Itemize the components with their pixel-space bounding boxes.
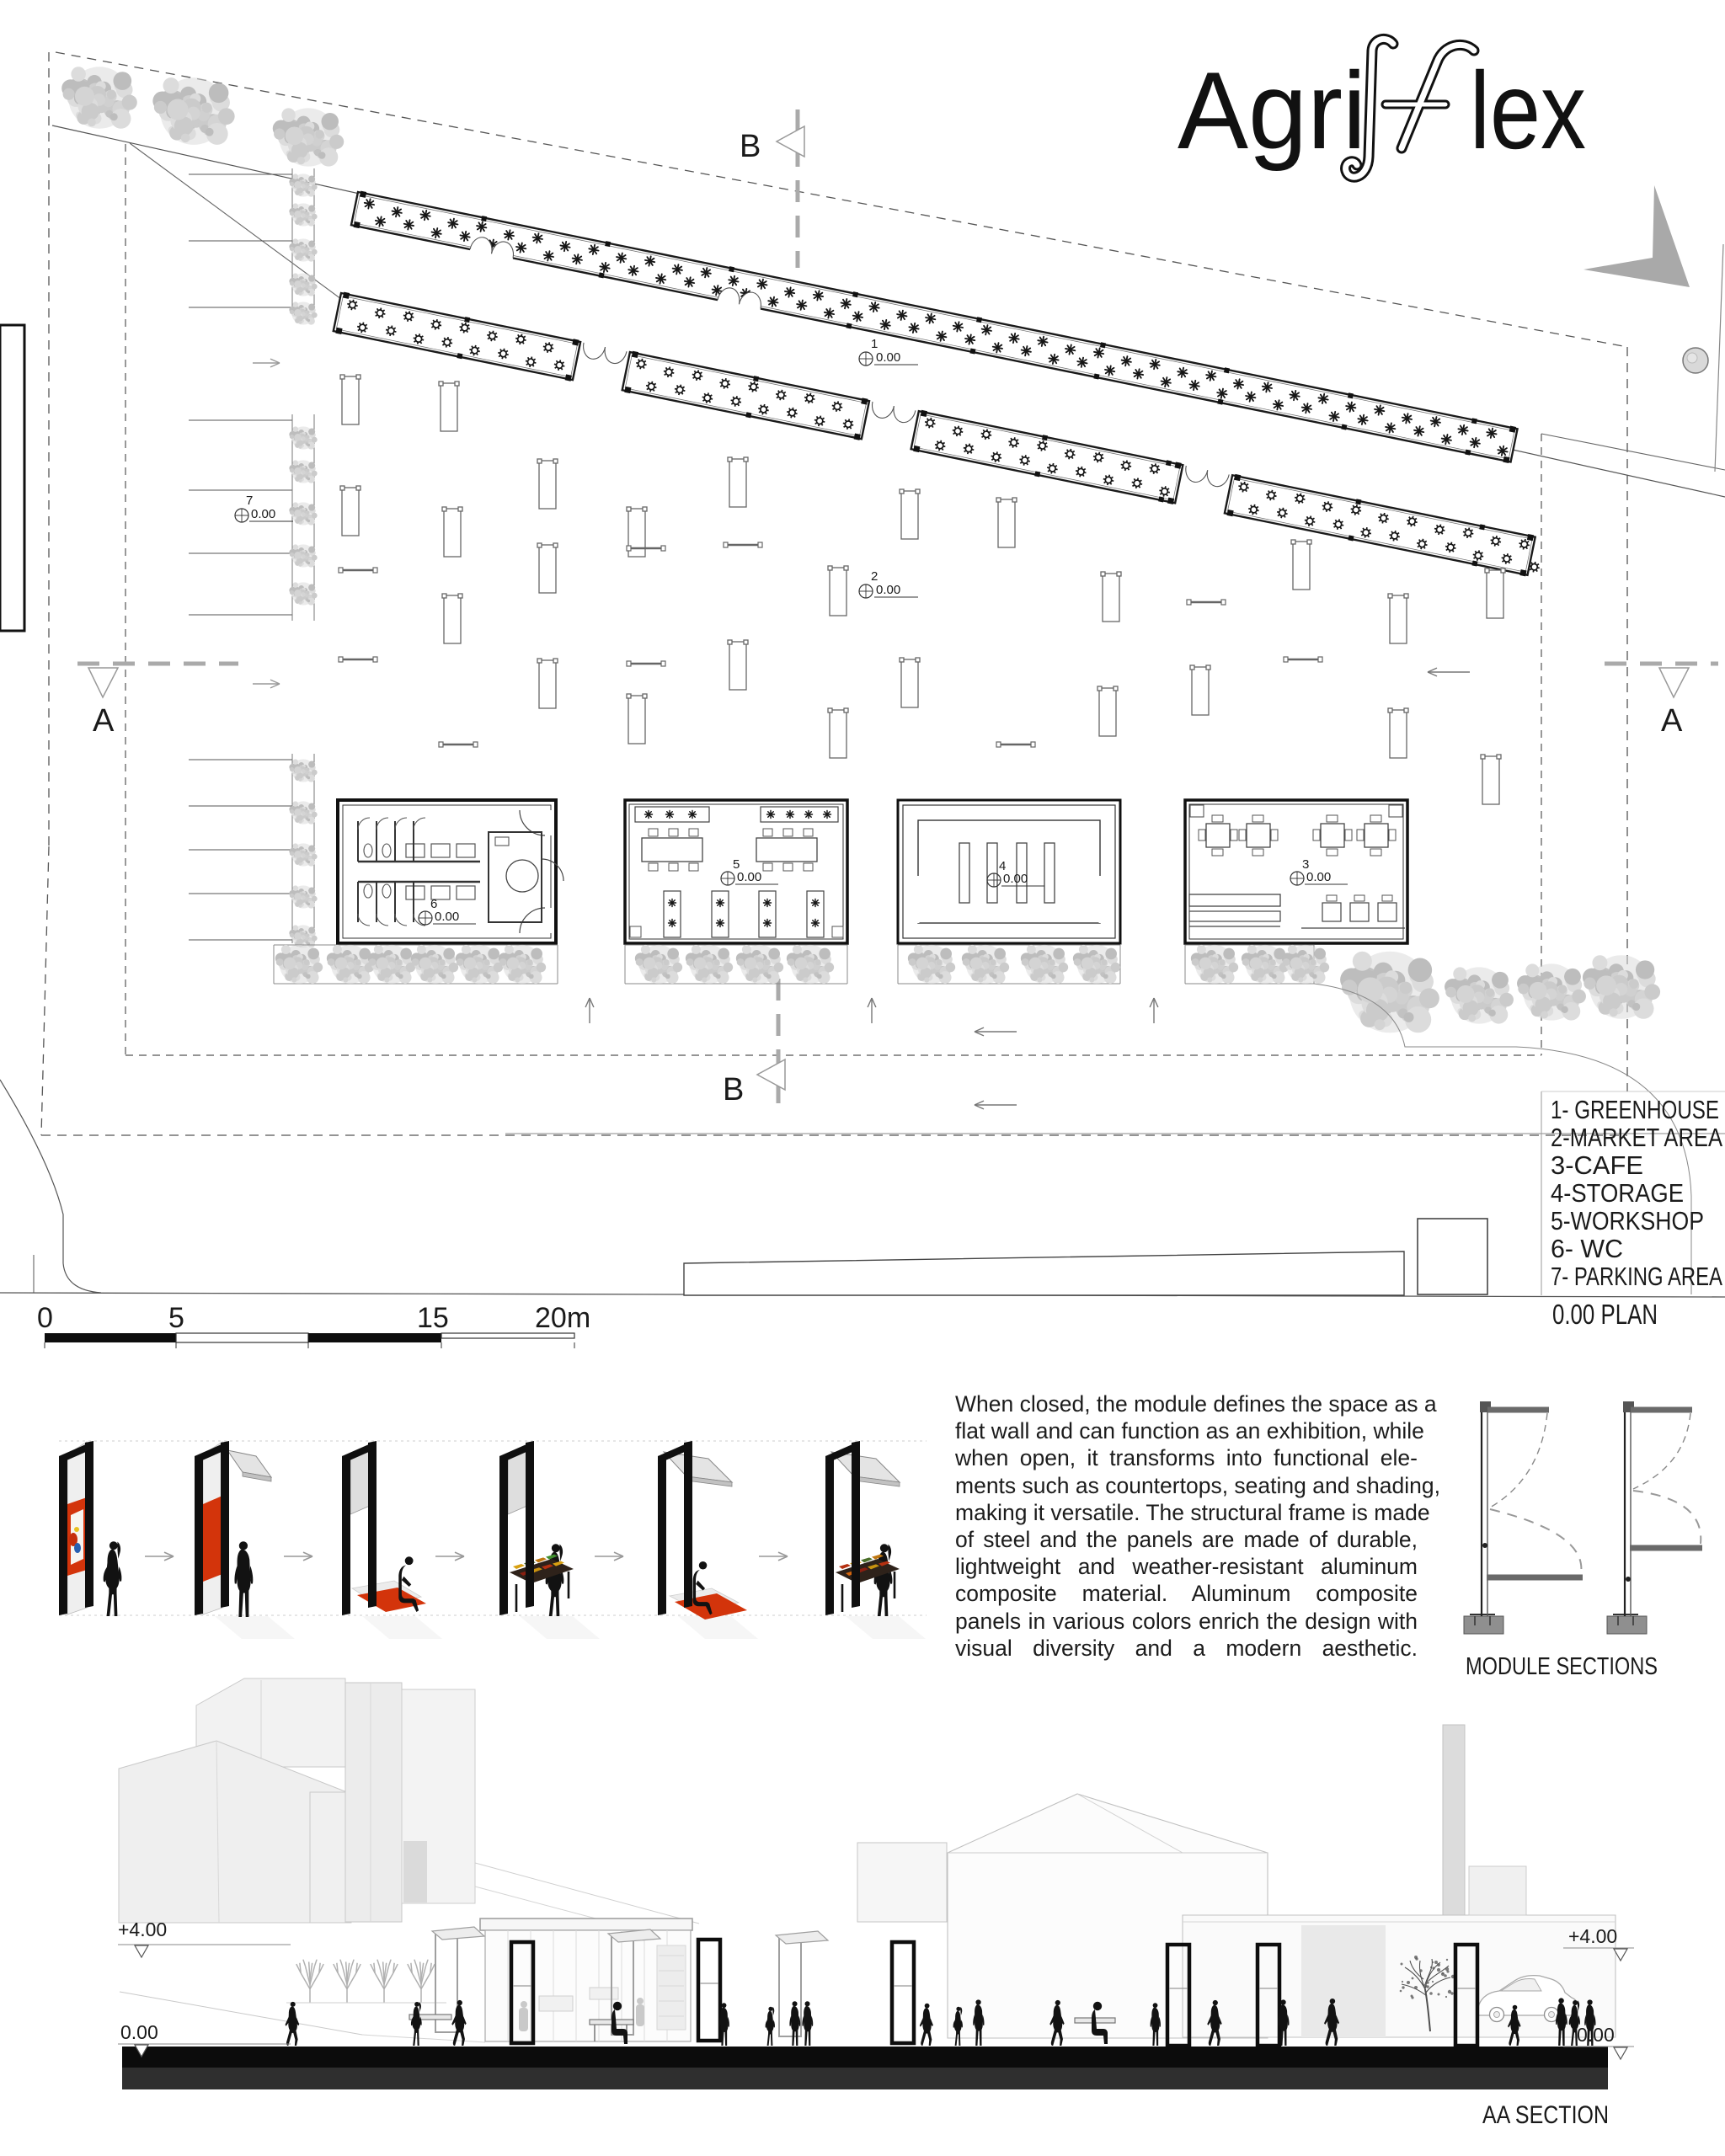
svg-text:+4.00: +4.00 (118, 1919, 167, 1940)
svg-text:lex: lex (1470, 49, 1586, 172)
svg-text:0.00: 0.00 (876, 583, 900, 597)
svg-text:A: A (1661, 703, 1683, 739)
svg-text:0.00: 0.00 (737, 870, 761, 884)
svg-text:A: A (93, 703, 115, 739)
svg-text:2: 2 (871, 569, 878, 584)
svg-text:0.00: 0.00 (1003, 872, 1028, 886)
svg-text:0.00: 0.00 (1306, 870, 1331, 884)
svg-text:15: 15 (417, 1302, 449, 1334)
svg-text:2-MARKET AREA: 2-MARKET AREA (1551, 1123, 1723, 1152)
svg-text:+4.00: +4.00 (1568, 1925, 1617, 1947)
svg-text:3-CAFE: 3-CAFE (1551, 1151, 1643, 1180)
svg-text:AA SECTION: AA SECTION (1482, 2101, 1609, 2129)
svg-text:0.00: 0.00 (435, 910, 459, 924)
svg-text:B: B (723, 1072, 744, 1107)
svg-text:1: 1 (871, 337, 878, 351)
svg-text:0.00: 0.00 (876, 350, 900, 365)
svg-text:20m: 20m (535, 1302, 590, 1334)
svg-text:0: 0 (37, 1302, 53, 1334)
svg-text:5-WORKSHOP: 5-WORKSHOP (1551, 1207, 1704, 1235)
svg-text:7- PARKING AREA: 7- PARKING AREA (1551, 1262, 1723, 1291)
svg-text:B: B (740, 129, 761, 164)
svg-text:6- WC: 6- WC (1551, 1235, 1623, 1263)
svg-text:Agri: Agri (1178, 49, 1366, 172)
svg-text:7: 7 (246, 494, 253, 508)
svg-text:0.00: 0.00 (120, 2021, 158, 2043)
svg-text:MODULE SECTIONS: MODULE SECTIONS (1466, 1653, 1658, 1680)
svg-text:0.00: 0.00 (1577, 2024, 1615, 2046)
svg-text:0.00: 0.00 (251, 507, 275, 521)
svg-text:5: 5 (168, 1302, 184, 1334)
svg-text:1- GREENHOUSE: 1- GREENHOUSE (1551, 1096, 1719, 1124)
svg-text:4-STORAGE: 4-STORAGE (1551, 1179, 1684, 1208)
svg-text:0.00 PLAN: 0.00 PLAN (1552, 1299, 1658, 1330)
